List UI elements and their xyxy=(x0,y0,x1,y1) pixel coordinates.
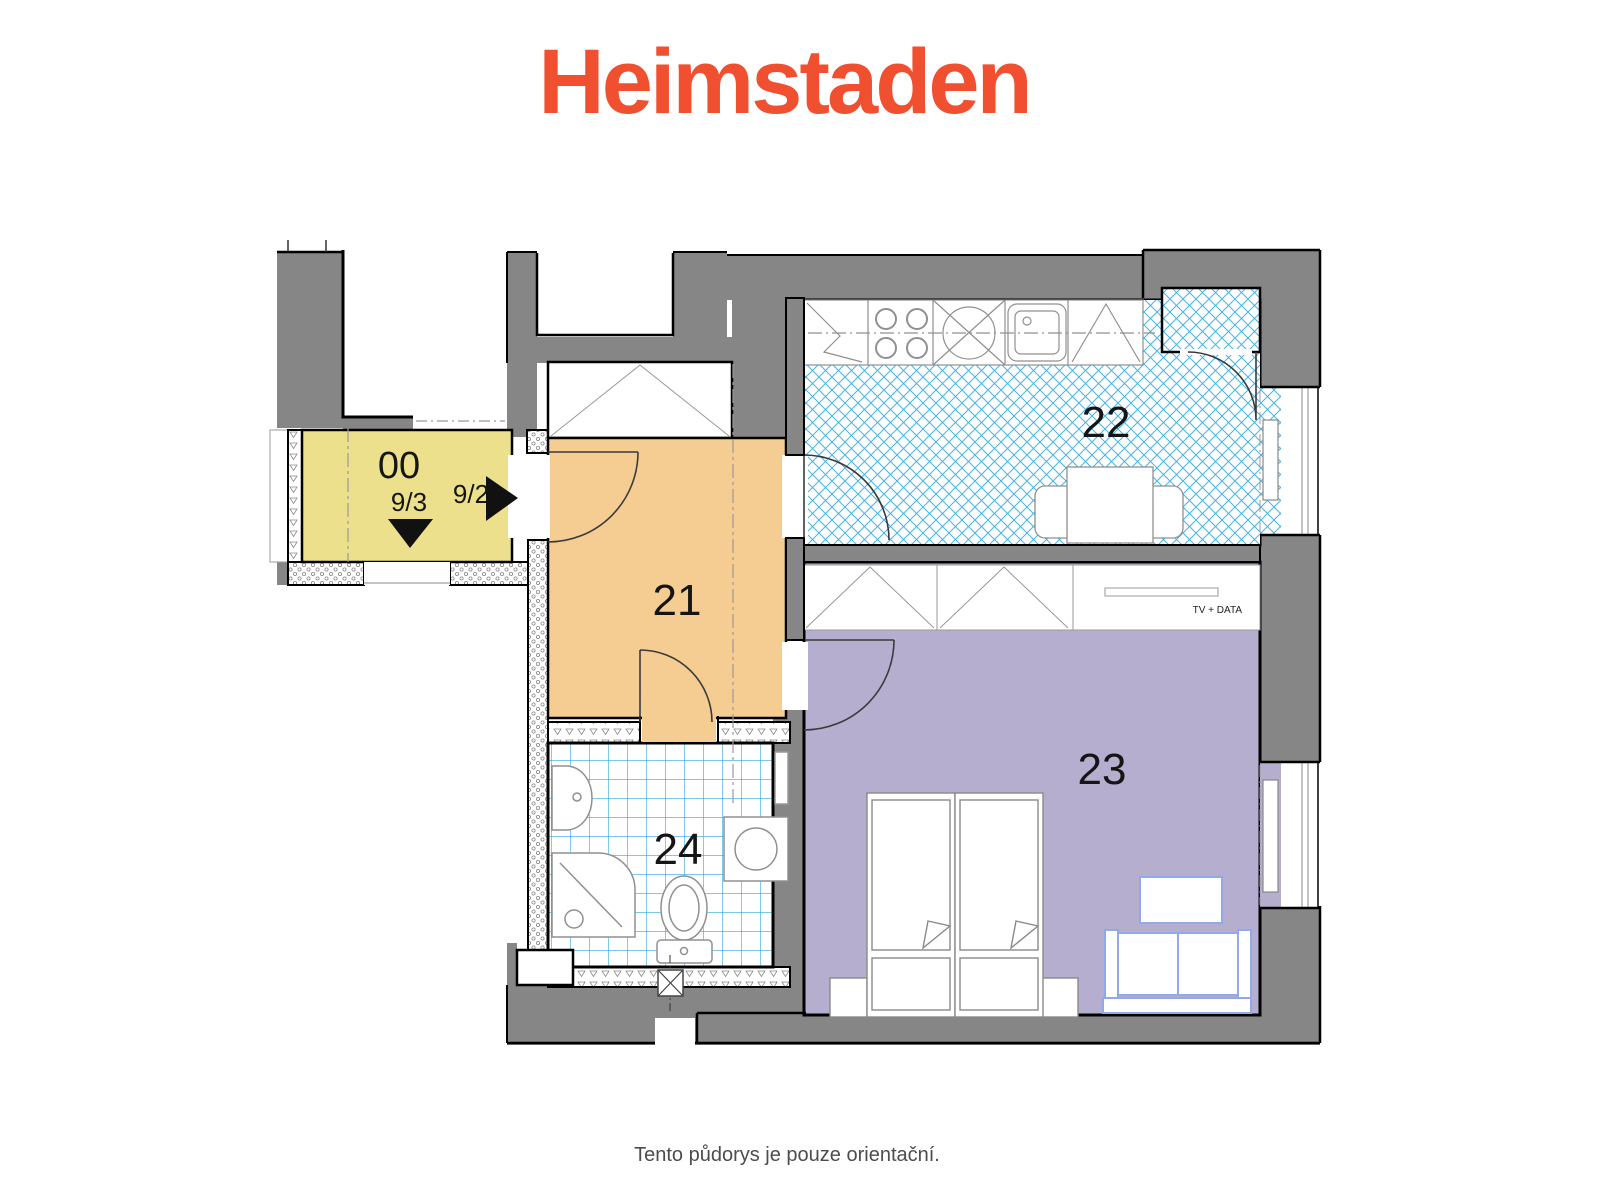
radiator-living xyxy=(1263,780,1278,892)
room-entry-label: 00 xyxy=(378,445,420,487)
bathroom-door-leaf xyxy=(775,752,788,804)
bathroom-door-threshold xyxy=(642,716,716,742)
radiator-kitchen xyxy=(1263,420,1278,500)
nightstand-left xyxy=(830,978,867,1017)
hall-wardrobe xyxy=(548,362,732,438)
window-living xyxy=(1260,762,1320,908)
kitchen-table xyxy=(1067,467,1153,543)
room-hall-label: 21 xyxy=(653,576,702,625)
nightstand-right xyxy=(1042,978,1078,1017)
flat-9-2-label: 9/2 xyxy=(453,479,489,509)
disclaimer-caption: Tento půdorys je pouze orientační. xyxy=(0,1144,1574,1167)
heimstaden-logo: Heimstaden xyxy=(0,36,1568,128)
beds xyxy=(830,793,1078,1017)
window-entry xyxy=(364,562,450,585)
floor-plan: TV + DATA xyxy=(268,238,1326,1072)
tv-shelf xyxy=(1105,588,1218,596)
room-bathroom-label: 24 xyxy=(654,825,703,874)
living-wardrobe xyxy=(804,565,1260,630)
kitchen-counter xyxy=(804,300,1155,365)
room-kitchen-label: 22 xyxy=(1082,398,1131,447)
tv-data-label: TV + DATA xyxy=(1193,605,1243,616)
bottom-opening xyxy=(655,1018,695,1070)
sofa xyxy=(1103,930,1251,1013)
kitchen-alcove xyxy=(1162,288,1260,355)
room-living-label: 23 xyxy=(1078,745,1127,794)
flat-9-3-label: 9/3 xyxy=(391,487,427,517)
wall-niche xyxy=(517,950,573,985)
shower-icon xyxy=(552,853,635,937)
washing-machine-icon xyxy=(724,817,788,881)
coffee-table xyxy=(1140,877,1222,923)
